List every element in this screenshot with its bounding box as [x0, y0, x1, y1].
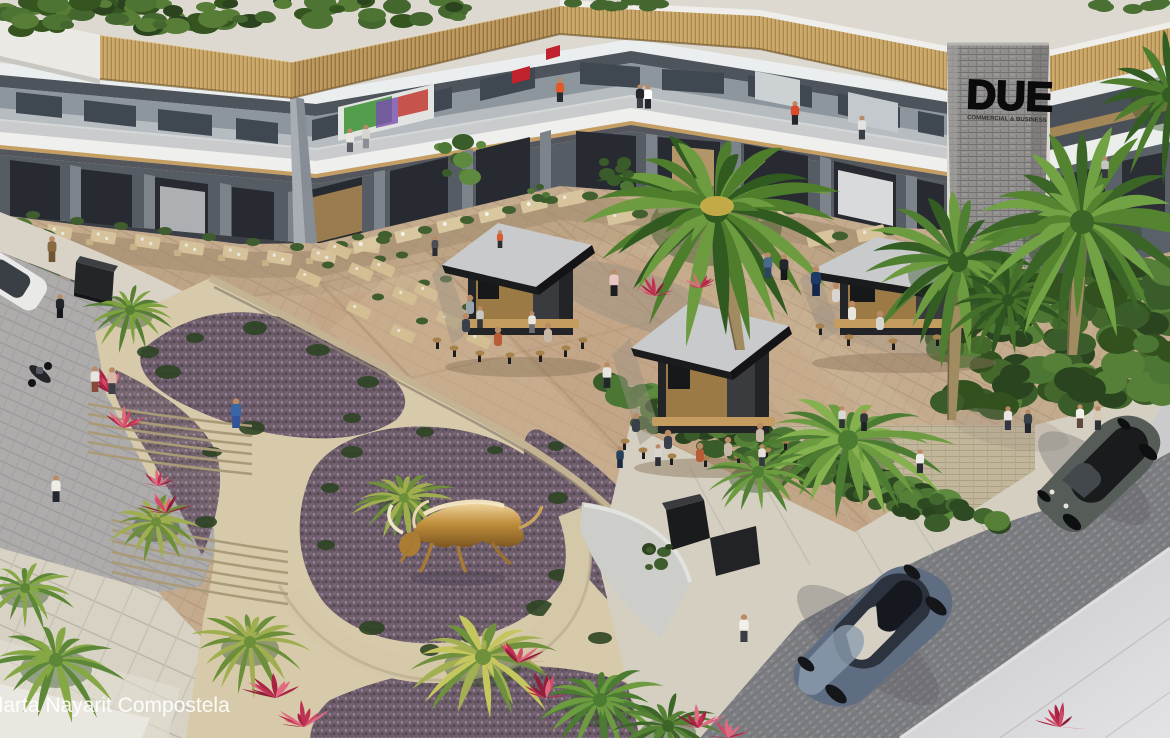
svg-text:DUE: DUE — [966, 71, 1054, 120]
svg-text:llarta Nayarit Compostela: llarta Nayarit Compostela — [0, 694, 230, 717]
